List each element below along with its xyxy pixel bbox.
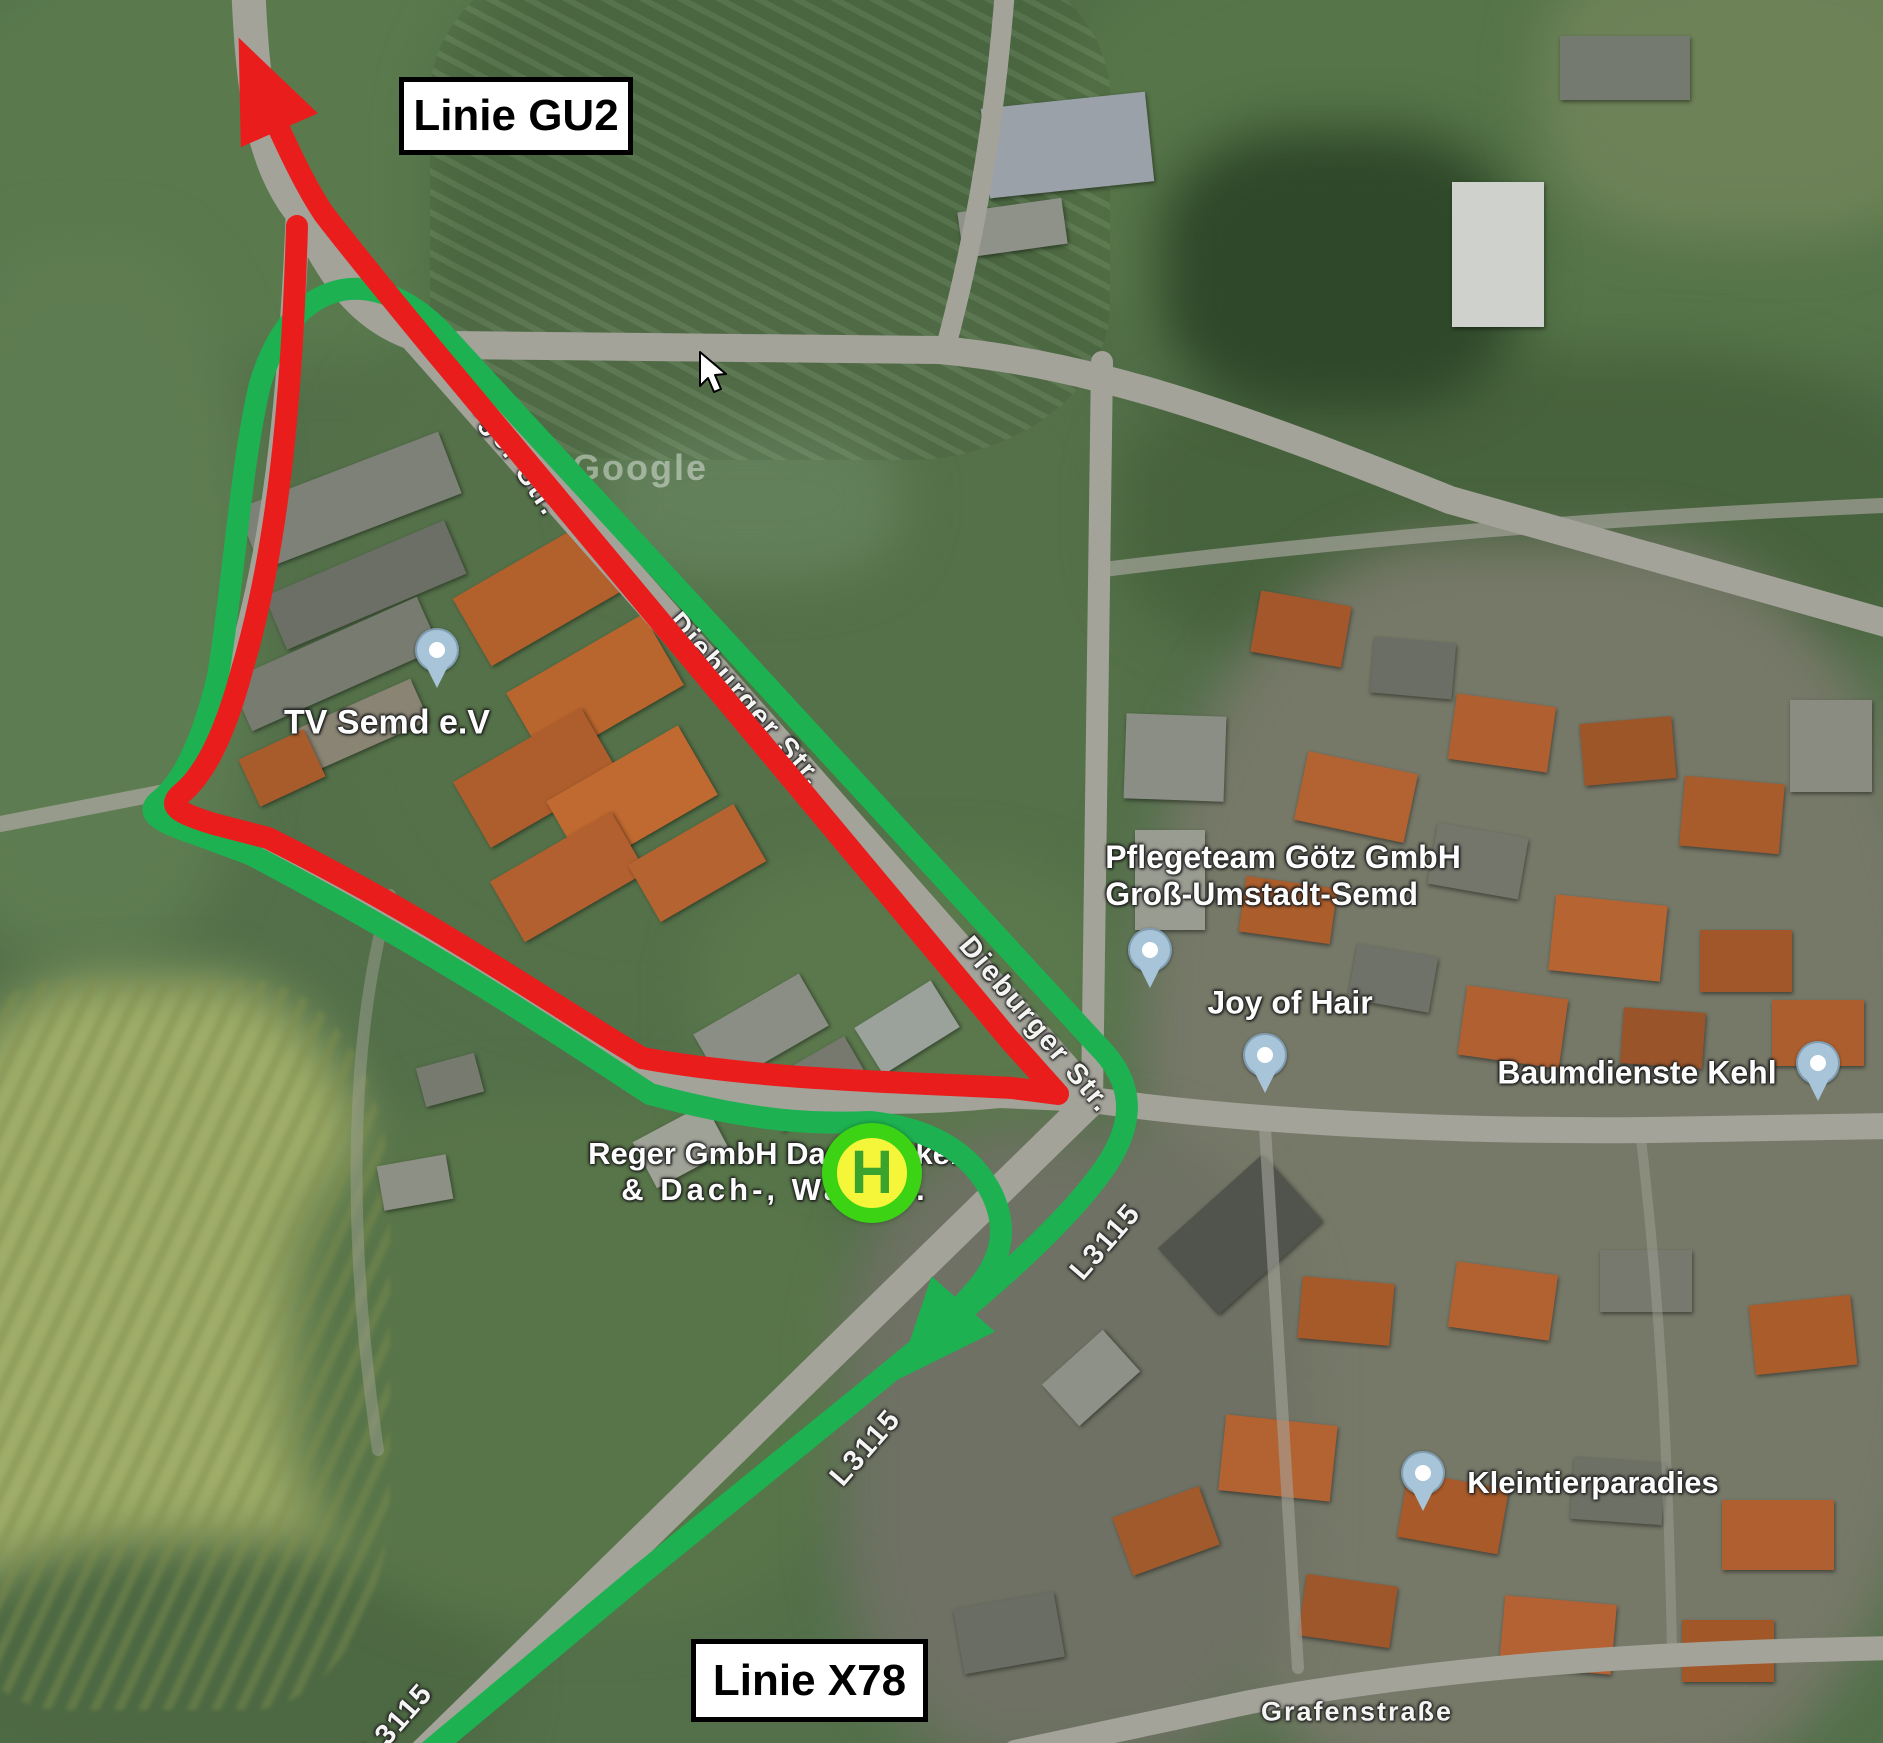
bus-stop-h-marker: H bbox=[822, 1123, 922, 1223]
bus-stop-h-letter: H bbox=[851, 1143, 893, 1204]
route-badge-linie-gu2: Linie GU2 bbox=[399, 77, 633, 155]
satellite-map[interactable]: Google Dieburger Str. Dieburger Str. Die… bbox=[0, 0, 1883, 1743]
routes-layer bbox=[0, 0, 1883, 1743]
route-badge-linie-x78: Linie X78 bbox=[691, 1639, 928, 1722]
route-gu2-line bbox=[175, 84, 1058, 1094]
